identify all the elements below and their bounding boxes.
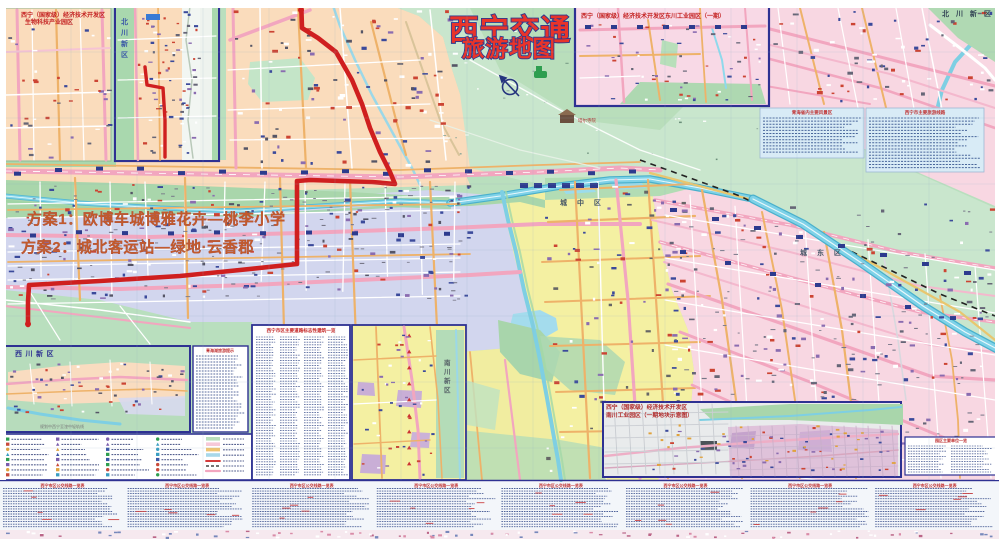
- svg-text:北 川 新 区: 北 川 新 区: [942, 9, 993, 18]
- svg-text:北: 北: [121, 17, 128, 26]
- svg-text:西宁市主要旅游线路: 西宁市主要旅游线路: [905, 109, 946, 116]
- svg-text:西宁市区公交线路一览表: 西宁市区公交线路一览表: [788, 482, 832, 488]
- svg-text:城 中 区: 城 中 区: [560, 198, 605, 207]
- svg-text:川: 川: [443, 368, 451, 376]
- svg-text:西宁（国家级）经济技术开发区东川工业园区（一期）: 西宁（国家级）经济技术开发区东川工业园区（一期）: [581, 12, 725, 20]
- svg-text:西川新区: 西川新区: [15, 349, 57, 358]
- svg-text:城 东 区: 城 东 区: [800, 248, 845, 257]
- svg-text:南川工业园区（一期地块示意图）: 南川工业园区（一期地块示意图）: [606, 411, 693, 419]
- svg-text:青海省内主要风景区: 青海省内主要风景区: [792, 109, 833, 116]
- svg-text:新: 新: [121, 39, 128, 48]
- svg-text:方案2：城北客运站—绿地·云香郡: 方案2：城北客运站—绿地·云香郡: [21, 238, 254, 256]
- svg-text:园区主要单位一览: 园区主要单位一览: [935, 437, 967, 443]
- svg-text:规划中西宁至湟中轻轨线: 规划中西宁至湟中轻轨线: [40, 423, 84, 429]
- svg-text:西宁市区公交线路一览表: 西宁市区公交线路一览表: [913, 482, 957, 488]
- svg-text:南: 南: [444, 358, 451, 367]
- svg-text:西宁市区公交线路一览表: 西宁市区公交线路一览表: [664, 482, 708, 488]
- svg-text:区: 区: [444, 386, 451, 394]
- svg-text:西宁（国家级）经济技术开发区: 西宁（国家级）经济技术开发区: [21, 11, 105, 19]
- svg-text:西宁市区公交线路一览表: 西宁市区公交线路一览表: [165, 482, 209, 488]
- svg-text:生物科技产业园区: 生物科技产业园区: [25, 18, 73, 26]
- svg-text:西宁市区主要道路标志性建筑一览: 西宁市区主要道路标志性建筑一览: [267, 327, 336, 334]
- svg-text:旅游地图: 旅游地图: [462, 36, 556, 62]
- svg-text:西宁市区公交线路一览表: 西宁市区公交线路一览表: [41, 482, 85, 488]
- svg-text:西宁市区公交线路一览表: 西宁市区公交线路一览表: [290, 482, 334, 488]
- svg-text:新: 新: [444, 376, 451, 385]
- svg-text:川: 川: [120, 29, 128, 37]
- svg-text:西宁市区公交线路一览表: 西宁市区公交线路一览表: [414, 482, 458, 488]
- svg-text:青海湖旅游提示: 青海湖旅游提示: [206, 347, 234, 353]
- svg-text:西宁（国家级）经济技术开发区: 西宁（国家级）经济技术开发区: [606, 403, 687, 411]
- svg-text:西宁市区公交线路一览表: 西宁市区公交线路一览表: [539, 482, 583, 488]
- svg-text:方案1：欧博车城博雅花卉—桃李小学: 方案1：欧博车城博雅花卉—桃李小学: [27, 210, 286, 228]
